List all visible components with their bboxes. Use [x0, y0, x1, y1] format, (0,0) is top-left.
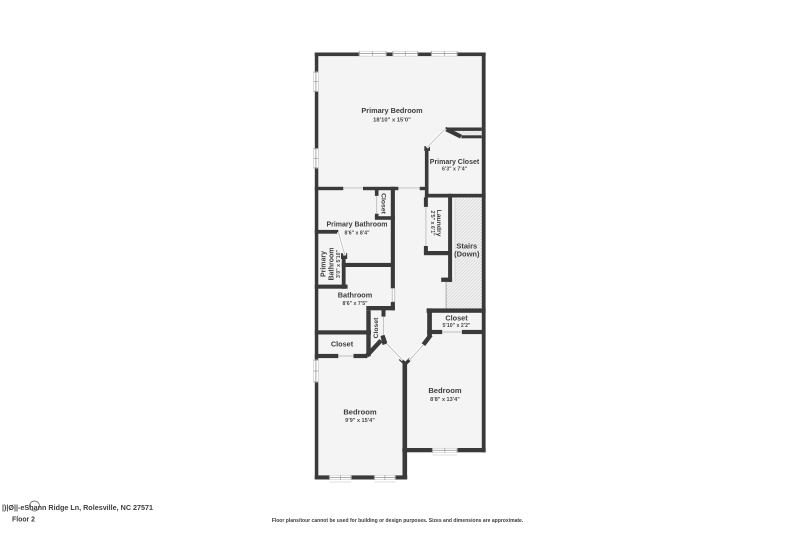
svg-text:Primary Closet: Primary Closet	[430, 159, 480, 166]
svg-text:6’3" x 7’4": 6’3" x 7’4"	[442, 167, 468, 173]
svg-text:Closet: Closet	[331, 340, 354, 349]
svg-text:2’5" x 6’1": 2’5" x 6’1"	[429, 210, 435, 236]
svg-text:Primary Bedroom: Primary Bedroom	[361, 106, 423, 115]
svg-text:18’10" x 15’0": 18’10" x 15’0"	[373, 118, 411, 124]
svg-text:Closet: Closet	[445, 313, 468, 322]
svg-text:(Down): (Down)	[454, 249, 480, 258]
svg-text:8’6" x 7’5": 8’6" x 7’5"	[342, 301, 368, 307]
svg-text:Bedroom: Bedroom	[428, 386, 462, 395]
svg-text:Floor plans/tour cannot be use: Floor plans/tour cannot be used for buil…	[272, 518, 524, 524]
svg-text:3’0" x 5’10": 3’0" x 5’10"	[336, 249, 342, 278]
svg-text:Closet: Closet	[380, 193, 387, 215]
svg-text:8’8" x 13’4": 8’8" x 13’4"	[430, 397, 460, 403]
svg-text:|)|Ø||-eShann Ridge Ln, Rolesv: |)|Ø||-eShann Ridge Ln, Rolesville, NC 2…	[2, 503, 153, 512]
svg-text:Floor 2: Floor 2	[12, 517, 35, 524]
svg-text:8’6" x 8’4": 8’6" x 8’4"	[344, 231, 370, 237]
svg-text:Bathroom: Bathroom	[329, 247, 336, 280]
svg-text:9’9" x 15’4": 9’9" x 15’4"	[345, 418, 375, 424]
svg-text:Closet: Closet	[373, 317, 380, 339]
svg-text:5’10" x 2’2": 5’10" x 2’2"	[443, 323, 472, 329]
svg-text:Primary: Primary	[320, 251, 327, 277]
svg-text:Primary Bathroom: Primary Bathroom	[326, 222, 387, 229]
svg-text:Bathroom: Bathroom	[338, 291, 373, 300]
svg-text:Bedroom: Bedroom	[343, 408, 377, 417]
